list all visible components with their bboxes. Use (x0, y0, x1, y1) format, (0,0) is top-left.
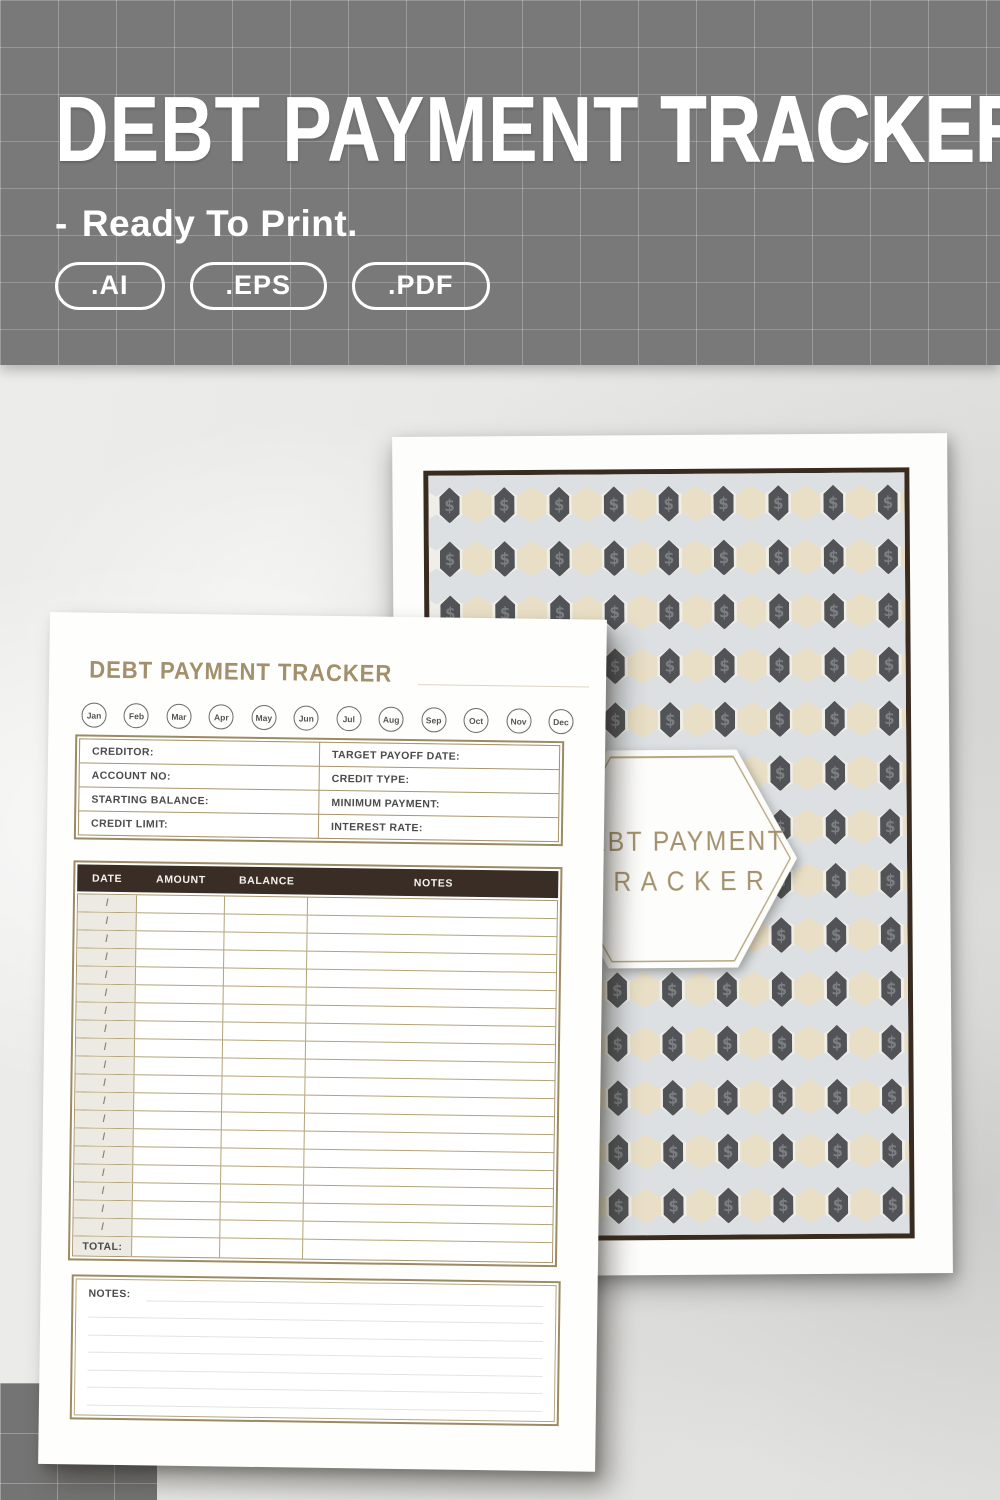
hex-tile-dollar: $ (714, 594, 734, 630)
balance-cell (222, 1076, 306, 1094)
balance-cell (223, 1058, 307, 1076)
hex-tile-dollar: $ (440, 541, 460, 577)
notes-cell (308, 898, 557, 918)
dollar-sign: $ (613, 1142, 624, 1162)
hex-tile-dollar: $ (879, 646, 899, 682)
date-cell: / (77, 984, 137, 1002)
amount-cell (137, 931, 225, 949)
table-header: DATEAMOUNTBALANCENOTES (77, 864, 558, 898)
dollar-sign: $ (613, 1088, 624, 1108)
hex-tile-dollar: $ (882, 1078, 902, 1114)
hex-tile-dollar: $ (827, 1025, 847, 1061)
balance-cell (223, 1004, 307, 1022)
balance-cell (224, 932, 308, 950)
balance-cell (224, 986, 308, 1004)
balance-cell (224, 968, 308, 986)
column-header: BALANCE (225, 866, 309, 894)
dollar-sign: $ (885, 870, 896, 890)
hex-tile-dollar: $ (717, 972, 737, 1008)
date-cell: / (75, 1092, 135, 1110)
date-cell: / (76, 1038, 136, 1056)
hex-tile-dollar: $ (605, 702, 625, 738)
dollar-sign: $ (773, 493, 784, 513)
dollar-sign: $ (667, 980, 678, 1000)
dollar-sign: $ (828, 547, 839, 567)
hex-tile-dollar: $ (718, 1188, 738, 1224)
hex-tile-dollar: $ (828, 1133, 848, 1169)
notes-cell (305, 1114, 554, 1134)
month-circle: Jan (81, 702, 106, 727)
hex-tile-dollar: $ (663, 1080, 683, 1116)
notes-cell (304, 1186, 553, 1206)
dollar-sign: $ (722, 980, 733, 1000)
hex-tile-dollar: $ (826, 971, 846, 1007)
amount-cell (137, 895, 225, 913)
dollar-sign: $ (609, 494, 620, 514)
hex-tile-dollar: $ (608, 1134, 628, 1170)
hex-tile-dollar: $ (660, 702, 680, 738)
notes-box: NOTES: (70, 1274, 561, 1426)
balance-cell (225, 896, 309, 914)
dollar-sign: $ (665, 656, 676, 676)
months-row: JanFebMarAprMayJunJulAugSepOctNovDec (81, 702, 573, 735)
date-cell: / (74, 1146, 134, 1164)
banner-title: DEBT PAYMENT TRACKER (55, 76, 1000, 183)
notes-cell (306, 1078, 555, 1098)
hex-tile-dollar: $ (883, 1186, 903, 1222)
amount-cell (135, 1021, 223, 1039)
dollar-sign: $ (777, 1033, 788, 1053)
format-badge: .AI (55, 262, 165, 310)
hex-tile-dollar: $ (882, 1132, 902, 1168)
amount-cell (135, 1075, 223, 1093)
month-circle: Sep (421, 707, 446, 732)
notes-inner: NOTES: (74, 1278, 557, 1422)
hex-tile-dollar: $ (604, 486, 624, 522)
info-field-label: INTEREST RATE: (319, 815, 558, 841)
hex-tile-dollar: $ (823, 485, 843, 521)
dollar-sign: $ (884, 708, 895, 728)
table-body: ///////////////////TOTAL: (72, 893, 558, 1263)
hex-tile-dollar: $ (878, 538, 898, 574)
dollar-sign: $ (719, 548, 730, 568)
balance-cell (225, 914, 309, 932)
dollar-sign: $ (832, 1141, 843, 1161)
dollar-sign: $ (778, 1195, 789, 1215)
dash-bullet: - (55, 203, 68, 244)
dollar-sign: $ (612, 980, 623, 1000)
hex-tile-dollar: $ (664, 1188, 684, 1224)
hex-tile-dollar: $ (494, 487, 514, 523)
info-box: CREDITOR:TARGET PAYOFF DATE:ACCOUNT NO:C… (74, 734, 564, 846)
dollar-sign: $ (830, 871, 841, 891)
hex-tile-dollar: $ (608, 1026, 628, 1062)
amount-cell (136, 985, 224, 1003)
hex-tile-dollar: $ (495, 541, 515, 577)
hex-tile-dollar: $ (880, 808, 900, 844)
total-balance-cell (220, 1238, 304, 1258)
banner-title-bold: TRACKER (661, 77, 1000, 181)
info-field-label: STARTING BALANCE: (79, 787, 318, 813)
balance-cell (221, 1148, 305, 1166)
month-circle: Apr (209, 704, 234, 729)
hex-tile-dollar: $ (880, 862, 900, 898)
dollar-sign: $ (663, 494, 674, 514)
notes-cell (305, 1150, 554, 1170)
notes-cell (304, 1168, 553, 1188)
dollar-sign: $ (444, 495, 455, 515)
hex-tile-dollar: $ (824, 647, 844, 683)
month-circle: Nov (506, 708, 531, 733)
amount-cell (133, 1201, 221, 1219)
notes-cell (305, 1132, 554, 1152)
dollar-sign: $ (554, 495, 565, 515)
balance-cell (223, 1022, 307, 1040)
dollar-sign: $ (833, 1195, 844, 1215)
dollar-sign: $ (885, 762, 896, 782)
hex-tile-dollar: $ (770, 701, 790, 737)
hex-tile-dollar: $ (605, 594, 625, 630)
notes-cell (306, 1060, 555, 1080)
hex-tile-dollar: $ (713, 486, 733, 522)
column-header: NOTES (308, 868, 558, 898)
balance-cell (224, 950, 308, 968)
dollar-sign: $ (774, 655, 785, 675)
notes-cell (307, 1006, 556, 1026)
amount-cell (135, 1039, 223, 1057)
notes-cell (308, 934, 557, 954)
hex-tile-dollar: $ (659, 540, 679, 576)
hex-tile-dollar: $ (439, 487, 459, 523)
balance-cell (221, 1166, 305, 1184)
dollar-sign: $ (720, 710, 731, 730)
date-cell: / (76, 1002, 136, 1020)
date-cell: / (74, 1164, 134, 1182)
dollar-sign: $ (883, 600, 894, 620)
hex-tile-dollar: $ (604, 540, 624, 576)
tracker-page: DEBT PAYMENT TRACKER JanFebMarAprMayJunJ… (38, 612, 607, 1472)
info-grid: CREDITOR:TARGET PAYOFF DATE:ACCOUNT NO:C… (78, 738, 560, 842)
dollar-sign: $ (829, 601, 840, 621)
dollar-sign: $ (664, 548, 675, 568)
dollar-sign: $ (883, 492, 894, 512)
hex-tile-dollar: $ (772, 1079, 792, 1115)
amount-cell (133, 1219, 221, 1237)
hex-tile-dollar: $ (715, 702, 735, 738)
notes-cell (304, 1222, 553, 1242)
info-field-label: CREDIT TYPE: (320, 767, 559, 793)
dollar-sign: $ (609, 548, 620, 568)
month-circle: Oct (463, 708, 488, 733)
dollar-sign: $ (665, 710, 676, 730)
month-circle: Jun (294, 705, 319, 730)
balance-cell (223, 1040, 307, 1058)
total-amount-cell (132, 1237, 220, 1257)
hex-tile-dollar: $ (824, 593, 844, 629)
hex-tile-dollar: $ (660, 648, 680, 684)
hex-tile-dollar: $ (714, 540, 734, 576)
notes-cell (306, 1024, 555, 1044)
dollar-sign: $ (668, 1196, 679, 1216)
date-cell: / (78, 894, 138, 912)
date-cell: / (78, 912, 138, 930)
notes-lines (87, 1283, 544, 1412)
hex-tile-dollar: $ (769, 647, 789, 683)
date-cell: / (75, 1128, 135, 1146)
notes-cell (306, 1042, 555, 1062)
dollar-sign: $ (723, 1196, 734, 1216)
amount-cell (134, 1129, 222, 1147)
dollar-sign: $ (832, 1087, 843, 1107)
dollar-sign: $ (668, 1088, 679, 1108)
dollar-sign: $ (719, 602, 730, 622)
hex-tile-dollar: $ (718, 1134, 738, 1170)
month-circle: Dec (548, 709, 573, 734)
month-circle: Jul (336, 706, 361, 731)
payment-table: DATEAMOUNTBALANCENOTES /////////////////… (68, 860, 563, 1267)
dollar-sign: $ (886, 924, 897, 944)
dollar-sign: $ (830, 817, 841, 837)
column-header: DATE (77, 864, 137, 892)
dollar-sign: $ (773, 547, 784, 567)
balance-cell (222, 1112, 306, 1130)
dollar-sign: $ (776, 979, 787, 999)
balance-cell (221, 1202, 305, 1220)
dollar-sign: $ (887, 1140, 898, 1160)
hex-tile-dollar: $ (880, 754, 900, 790)
info-field-label: TARGET PAYOFF DATE: (320, 743, 559, 769)
dollar-sign: $ (610, 656, 621, 676)
dollar-sign: $ (778, 1141, 789, 1161)
month-circle: Mar (166, 704, 191, 729)
notes-label: NOTES: (88, 1288, 130, 1301)
notes-cell (307, 970, 556, 990)
amount-cell (133, 1183, 221, 1201)
month-circle: Feb (124, 703, 149, 728)
amount-cell (137, 913, 225, 931)
hex-tile-dollar: $ (659, 594, 679, 630)
dollar-sign: $ (829, 655, 840, 675)
amount-cell (135, 1057, 223, 1075)
notes-cell (305, 1096, 554, 1116)
dollar-sign: $ (774, 601, 785, 621)
date-cell: / (77, 930, 137, 948)
date-cell: / (77, 948, 137, 966)
dollar-sign: $ (722, 1034, 733, 1054)
format-badge: .EPS (190, 262, 328, 310)
info-field-label: ACCOUNT NO: (80, 763, 319, 789)
date-cell: / (75, 1110, 135, 1128)
notes-cell (308, 916, 557, 936)
date-cell: / (73, 1218, 133, 1236)
hex-tile-dollar: $ (879, 700, 899, 736)
hex-tile-dollar: $ (878, 484, 898, 520)
dollar-sign: $ (668, 1142, 679, 1162)
dollar-sign: $ (775, 709, 786, 729)
product-mockup: DEBT PAYMENT TRACKER -Ready To Print. .A… (0, 0, 1000, 1500)
total-notes-cell (303, 1240, 552, 1262)
date-cell: / (76, 1020, 136, 1038)
column-header: AMOUNT (137, 865, 225, 893)
balance-cell (221, 1184, 305, 1202)
hex-tile-dollar: $ (825, 809, 845, 845)
amount-cell (134, 1093, 222, 1111)
amount-cell (136, 1003, 224, 1021)
hex-tile-dollar: $ (768, 485, 788, 521)
tracker-title: DEBT PAYMENT TRACKER (89, 657, 392, 689)
hex-tile-dollar: $ (826, 863, 846, 899)
dollar-sign: $ (445, 549, 456, 569)
amount-cell (136, 949, 224, 967)
dollar-sign: $ (887, 1086, 898, 1106)
hex-tile-dollar: $ (825, 701, 845, 737)
dollar-sign: $ (722, 1088, 733, 1108)
tracker-page-head: DEBT PAYMENT TRACKER (89, 657, 589, 692)
dollar-sign: $ (777, 1087, 788, 1107)
amount-cell (136, 967, 224, 985)
dollar-sign: $ (883, 546, 894, 566)
dollar-sign: $ (610, 710, 621, 730)
hex-tile-dollar: $ (823, 539, 843, 575)
date-cell: / (77, 966, 137, 984)
hex-tile-dollar: $ (773, 1187, 793, 1223)
notes-cell (304, 1204, 553, 1224)
total-label: TOTAL: (73, 1236, 133, 1256)
dollar-sign: $ (664, 602, 675, 622)
dollar-sign: $ (885, 816, 896, 836)
amount-cell (134, 1147, 222, 1165)
hex-tile-dollar: $ (662, 1026, 682, 1062)
hex-tile-dollar: $ (825, 755, 845, 791)
info-field-label: MINIMUM PAYMENT: (319, 791, 558, 817)
hex-tile-dollar: $ (879, 592, 899, 628)
hex-tile-dollar: $ (717, 1026, 737, 1062)
amount-cell (133, 1165, 221, 1183)
amount-cell (134, 1111, 222, 1129)
info-field-label: CREDIT LIMIT: (79, 811, 318, 837)
dollar-sign: $ (614, 1196, 625, 1216)
format-badges: .AI.EPS.PDF (55, 262, 490, 310)
month-circle: Aug (379, 707, 404, 732)
hex-tile-dollar: $ (826, 917, 846, 953)
format-badge: .PDF (352, 262, 490, 310)
balance-cell (222, 1094, 306, 1112)
hex-tile-dollar: $ (769, 593, 789, 629)
hex-tile-dollar: $ (827, 1079, 847, 1115)
hex-tile-dollar: $ (662, 972, 682, 1008)
banner-subtitle: -Ready To Print. (55, 203, 358, 245)
hex-tile-dollar: $ (663, 1134, 683, 1170)
banner-title-regular: DEBT PAYMENT (55, 77, 639, 181)
dollar-sign: $ (829, 709, 840, 729)
hex-tile-dollar: $ (715, 648, 735, 684)
month-circle: May (251, 705, 276, 730)
dollar-sign: $ (499, 495, 510, 515)
dollar-sign: $ (499, 549, 510, 569)
cover-title-line2: TRACKER (580, 864, 774, 899)
hex-tile-dollar: $ (608, 1080, 628, 1116)
info-field-label: CREDITOR: (80, 739, 319, 765)
hex-tile-dollar: $ (549, 541, 569, 577)
hex-tile-dollar: $ (828, 1187, 848, 1223)
date-cell: / (75, 1074, 135, 1092)
hex-tile-dollar: $ (881, 970, 901, 1006)
dollar-sign: $ (832, 1033, 843, 1053)
dollar-sign: $ (723, 1142, 734, 1162)
date-cell: / (76, 1056, 136, 1074)
dollar-sign: $ (831, 979, 842, 999)
dollar-sign: $ (884, 654, 895, 674)
title-rule (418, 684, 589, 687)
hex-tile-dollar: $ (882, 1024, 902, 1060)
hex-tile-dollar: $ (549, 487, 569, 523)
dollar-sign: $ (888, 1194, 899, 1214)
hex-tile-dollar: $ (772, 971, 792, 1007)
balance-cell (220, 1220, 304, 1238)
hex-tile-dollar: $ (772, 1025, 792, 1061)
dollar-sign: $ (831, 925, 842, 945)
date-cell: / (74, 1200, 134, 1218)
hex-tile-dollar: $ (609, 1188, 629, 1224)
notes-cell (307, 952, 556, 972)
dollar-sign: $ (719, 656, 730, 676)
hex-tile-dollar: $ (881, 916, 901, 952)
dollar-sign: $ (828, 493, 839, 513)
notes-cell (307, 988, 556, 1008)
hex-tile-dollar: $ (718, 1080, 738, 1116)
dollar-sign: $ (830, 763, 841, 783)
dollar-sign: $ (886, 978, 897, 998)
header-banner: DEBT PAYMENT TRACKER -Ready To Print. .A… (0, 0, 1000, 365)
dollar-sign: $ (554, 549, 565, 569)
hex-tile-dollar: $ (773, 1133, 793, 1169)
balance-cell (222, 1130, 306, 1148)
dollar-sign: $ (612, 1034, 623, 1054)
hex-tile-dollar: $ (769, 539, 789, 575)
hex-tile-dollar: $ (659, 486, 679, 522)
dollar-sign: $ (667, 1034, 678, 1054)
banner-subtitle-text: Ready To Print. (82, 203, 358, 244)
hex-tile-dollar: $ (605, 648, 625, 684)
date-cell: / (74, 1182, 134, 1200)
hex-tile-dollar: $ (607, 972, 627, 1008)
dollar-sign: $ (718, 494, 729, 514)
dollar-sign: $ (609, 602, 620, 622)
dollar-sign: $ (886, 1032, 897, 1052)
